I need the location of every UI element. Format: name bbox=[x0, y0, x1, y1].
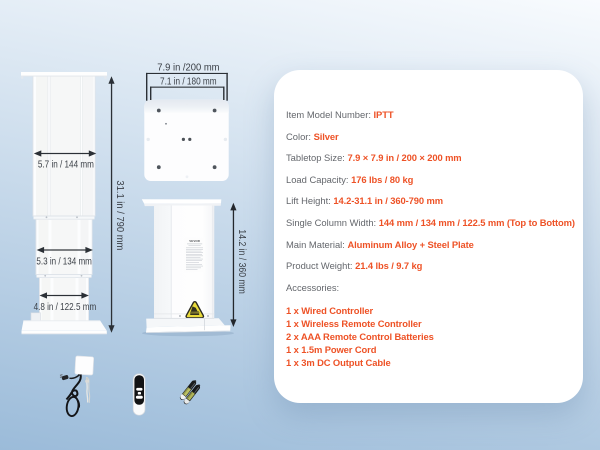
svg-text:5.3 in / 134 mm: 5.3 in / 134 mm bbox=[36, 256, 92, 267]
svg-text:31.1 in / 790 mm: 31.1 in / 790 mm bbox=[114, 180, 125, 250]
svg-text:7.9 in /200 mm: 7.9 in /200 mm bbox=[157, 63, 219, 74]
svg-text:14.2 in / 360 mm: 14.2 in / 360 mm bbox=[236, 229, 247, 294]
svg-text:4.8 in / 122.5 mm: 4.8 in / 122.5 mm bbox=[34, 302, 97, 313]
svg-text:5.7 in / 144 mm: 5.7 in / 144 mm bbox=[38, 159, 94, 170]
svg-text:7.1 in / 180 mm: 7.1 in / 180 mm bbox=[160, 77, 217, 88]
svg-text:VEVOR: VEVOR bbox=[189, 239, 200, 243]
